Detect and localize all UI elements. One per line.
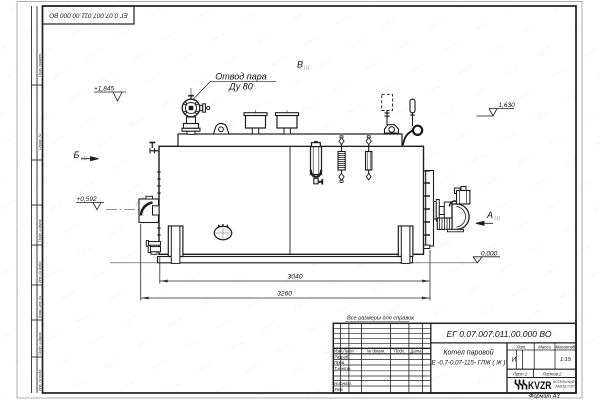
svg-text:Справ. №: Справ. № xyxy=(38,134,42,150)
svg-text:Утв.: Утв. xyxy=(334,387,344,392)
svg-text:Подп. и дата: Подп. и дата xyxy=(38,220,42,243)
svg-text:КОТЕЛЬНЫЙ: КОТЕЛЬНЫЙ xyxy=(553,380,575,384)
svg-text:ЕГ 0.07.007.011.00.000 ВО: ЕГ 0.07.007.011.00.000 ВО xyxy=(49,11,128,18)
svg-text:Т.контр.: Т.контр. xyxy=(334,366,351,371)
svg-text:А: А xyxy=(486,210,493,220)
svg-text:Подп.: Подп. xyxy=(394,349,405,354)
svg-text:ЗАВОД РЭП: ЗАВОД РЭП xyxy=(555,385,575,389)
svg-text:1,630: 1,630 xyxy=(499,102,516,109)
svg-text:Перв. примен.: Перв. примен. xyxy=(38,53,42,77)
svg-text:(1): (1) xyxy=(495,216,501,221)
svg-text:Изм.Лист: Изм.Лист xyxy=(334,349,354,354)
svg-text:Инв. № дубл.: Инв. № дубл. xyxy=(38,261,42,283)
svg-text:+0,592: +0,592 xyxy=(77,196,97,203)
svg-text:Е -0,7-0,07-115- ГЛЖ ( Ж ): Е -0,7-0,07-115- ГЛЖ ( Ж ) xyxy=(432,360,506,367)
svg-text:Подп. и дата: Подп. и дата xyxy=(38,333,42,356)
svg-text:Н.контр.: Н.контр. xyxy=(334,381,352,386)
svg-text:Дата: Дата xyxy=(409,349,422,354)
svg-text:Масса: Масса xyxy=(538,344,551,349)
svg-text:(1): (1) xyxy=(304,65,310,70)
svg-text:Все размеры для справок: Все размеры для справок xyxy=(347,316,414,322)
svg-text:Масштаб: Масштаб xyxy=(556,344,576,349)
svg-text:В: В xyxy=(297,60,303,70)
svg-text:Отвод пара: Отвод пара xyxy=(215,72,266,82)
svg-text:Котел паровой: Котел паровой xyxy=(443,349,493,357)
svg-text:Б: Б xyxy=(74,150,80,160)
svg-text:+1,845: +1,845 xyxy=(94,86,114,93)
svg-text:0,000: 0,000 xyxy=(481,250,498,257)
svg-text:KVZR: KVZR xyxy=(528,380,552,392)
svg-text:(1): (1) xyxy=(82,156,88,161)
svg-text:1:15: 1:15 xyxy=(560,357,572,363)
svg-text:Лит.: Лит. xyxy=(516,344,527,349)
svg-text:Инв. № подл.: Инв. № подл. xyxy=(38,369,42,391)
svg-text:№ докум.: № докум. xyxy=(367,349,385,354)
svg-text:Лист 1: Лист 1 xyxy=(512,371,527,376)
svg-text:Листов 2: Листов 2 xyxy=(542,371,562,376)
svg-text:Взам. инв. №: Взам. инв. № xyxy=(38,296,42,318)
svg-text:Пров.: Пров. xyxy=(334,360,345,365)
svg-text:Формат А3: Формат А3 xyxy=(529,394,560,400)
svg-text:ЕГ 0.07.007.011.00.000 ВО: ЕГ 0.07.007.011.00.000 ВО xyxy=(447,329,552,339)
svg-text:3040: 3040 xyxy=(287,273,302,280)
svg-text:3260: 3260 xyxy=(277,290,292,297)
svg-text:И: И xyxy=(512,358,517,364)
svg-text:Разраб.: Разраб. xyxy=(334,355,349,360)
svg-text:Ду 80: Ду 80 xyxy=(228,82,252,92)
